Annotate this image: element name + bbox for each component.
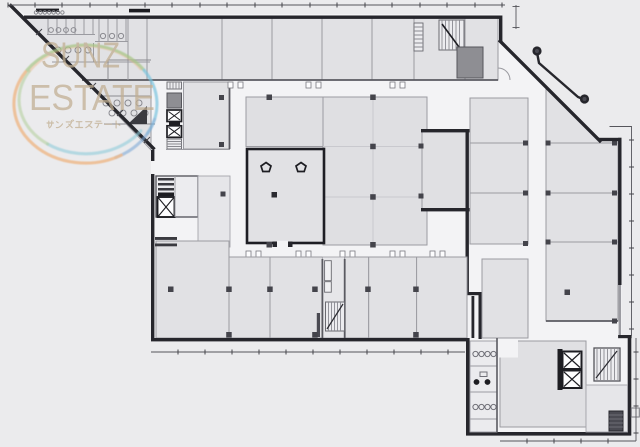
- svg-text:ESTATE: ESTATE: [29, 77, 155, 118]
- svg-text:SUNZ: SUNZ: [41, 35, 120, 76]
